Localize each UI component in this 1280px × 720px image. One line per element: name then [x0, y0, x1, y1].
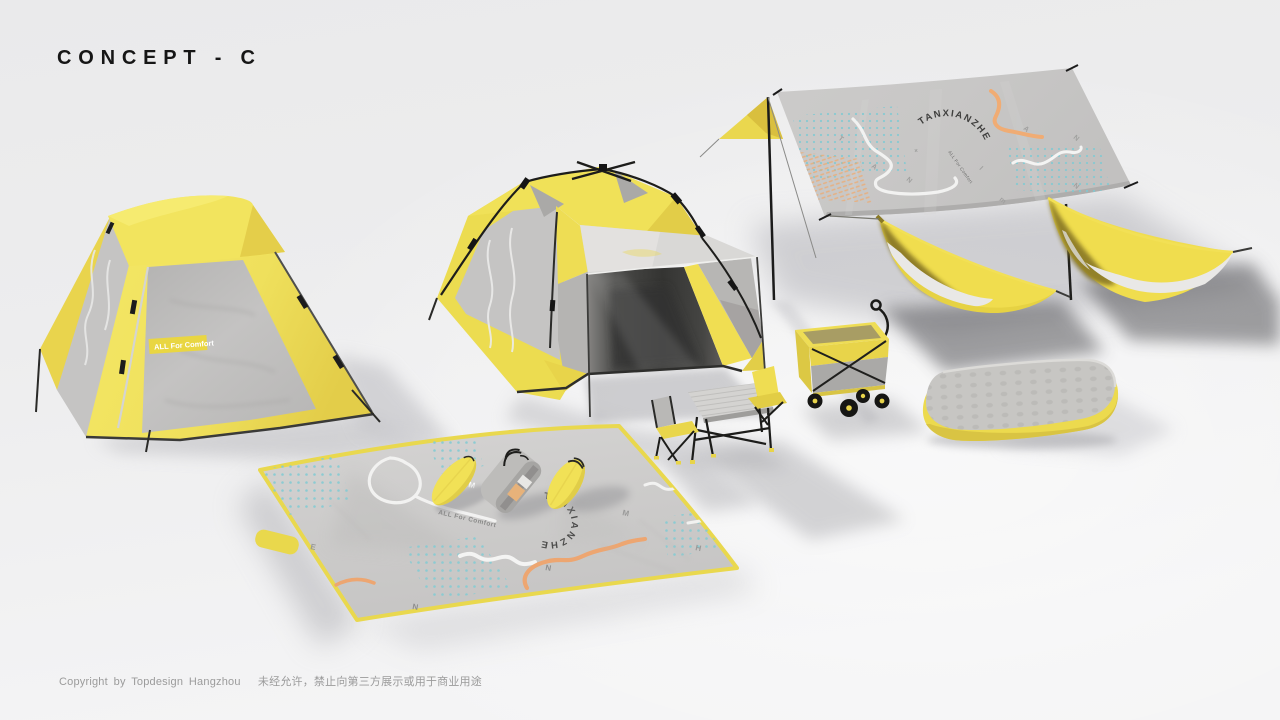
svg-text:CONCEPT - C: CONCEPT - C	[57, 47, 262, 69]
svg-text:Copyright by Topdesign Hang: Copyright by Topdesign Hangzhou 未经允许，禁止向…	[59, 674, 482, 688]
